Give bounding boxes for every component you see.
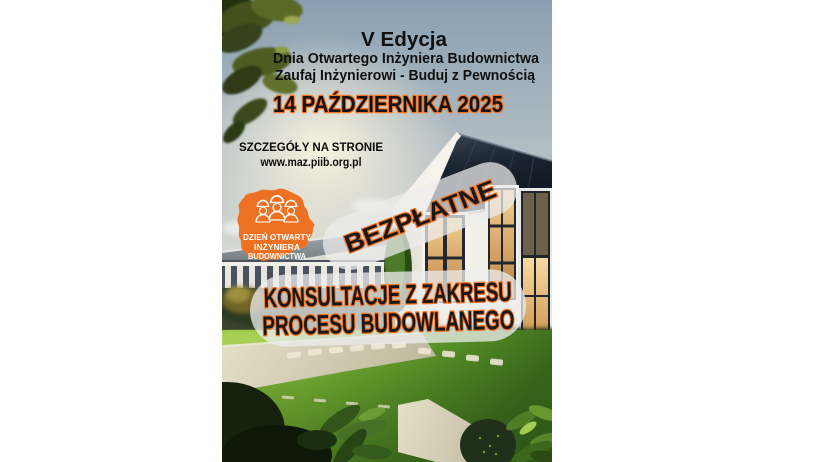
poster: DZIEŃ OTWARTY INŻYNIERA BUDOWNICTWA BEZP… bbox=[222, 0, 552, 462]
logo-line2: INŻYNIERA bbox=[254, 243, 300, 252]
entry-window bbox=[518, 188, 552, 344]
page-background: DZIEŃ OTWARTY INŻYNIERA BUDOWNICTWA BEZP… bbox=[0, 0, 824, 462]
logo-line1: DZIEŃ OTWARTY bbox=[243, 232, 311, 242]
poster-scene: DZIEŃ OTWARTY INŻYNIERA BUDOWNICTWA BEZP… bbox=[222, 0, 552, 462]
details-label: SZCZEGÓŁY NA STRONIE bbox=[239, 141, 383, 154]
event-date: 14 PAŹDZIERNIKA 2025 bbox=[273, 90, 503, 117]
logo-line3: BUDOWNICTWA bbox=[248, 252, 306, 261]
edition-title: V Edycja bbox=[361, 29, 448, 51]
event-name: Dnia Otwartego Inżyniera Budownictwa bbox=[273, 51, 540, 67]
event-slogan: Zaufaj Inżynierowi - Buduj z Pewnością bbox=[275, 68, 536, 84]
website-url: www.maz.piib.org.pl bbox=[260, 157, 362, 169]
consultation-banner: KONSULTACJE Z ZAKRESU PROCESU BUDOWLANEG… bbox=[249, 268, 527, 347]
